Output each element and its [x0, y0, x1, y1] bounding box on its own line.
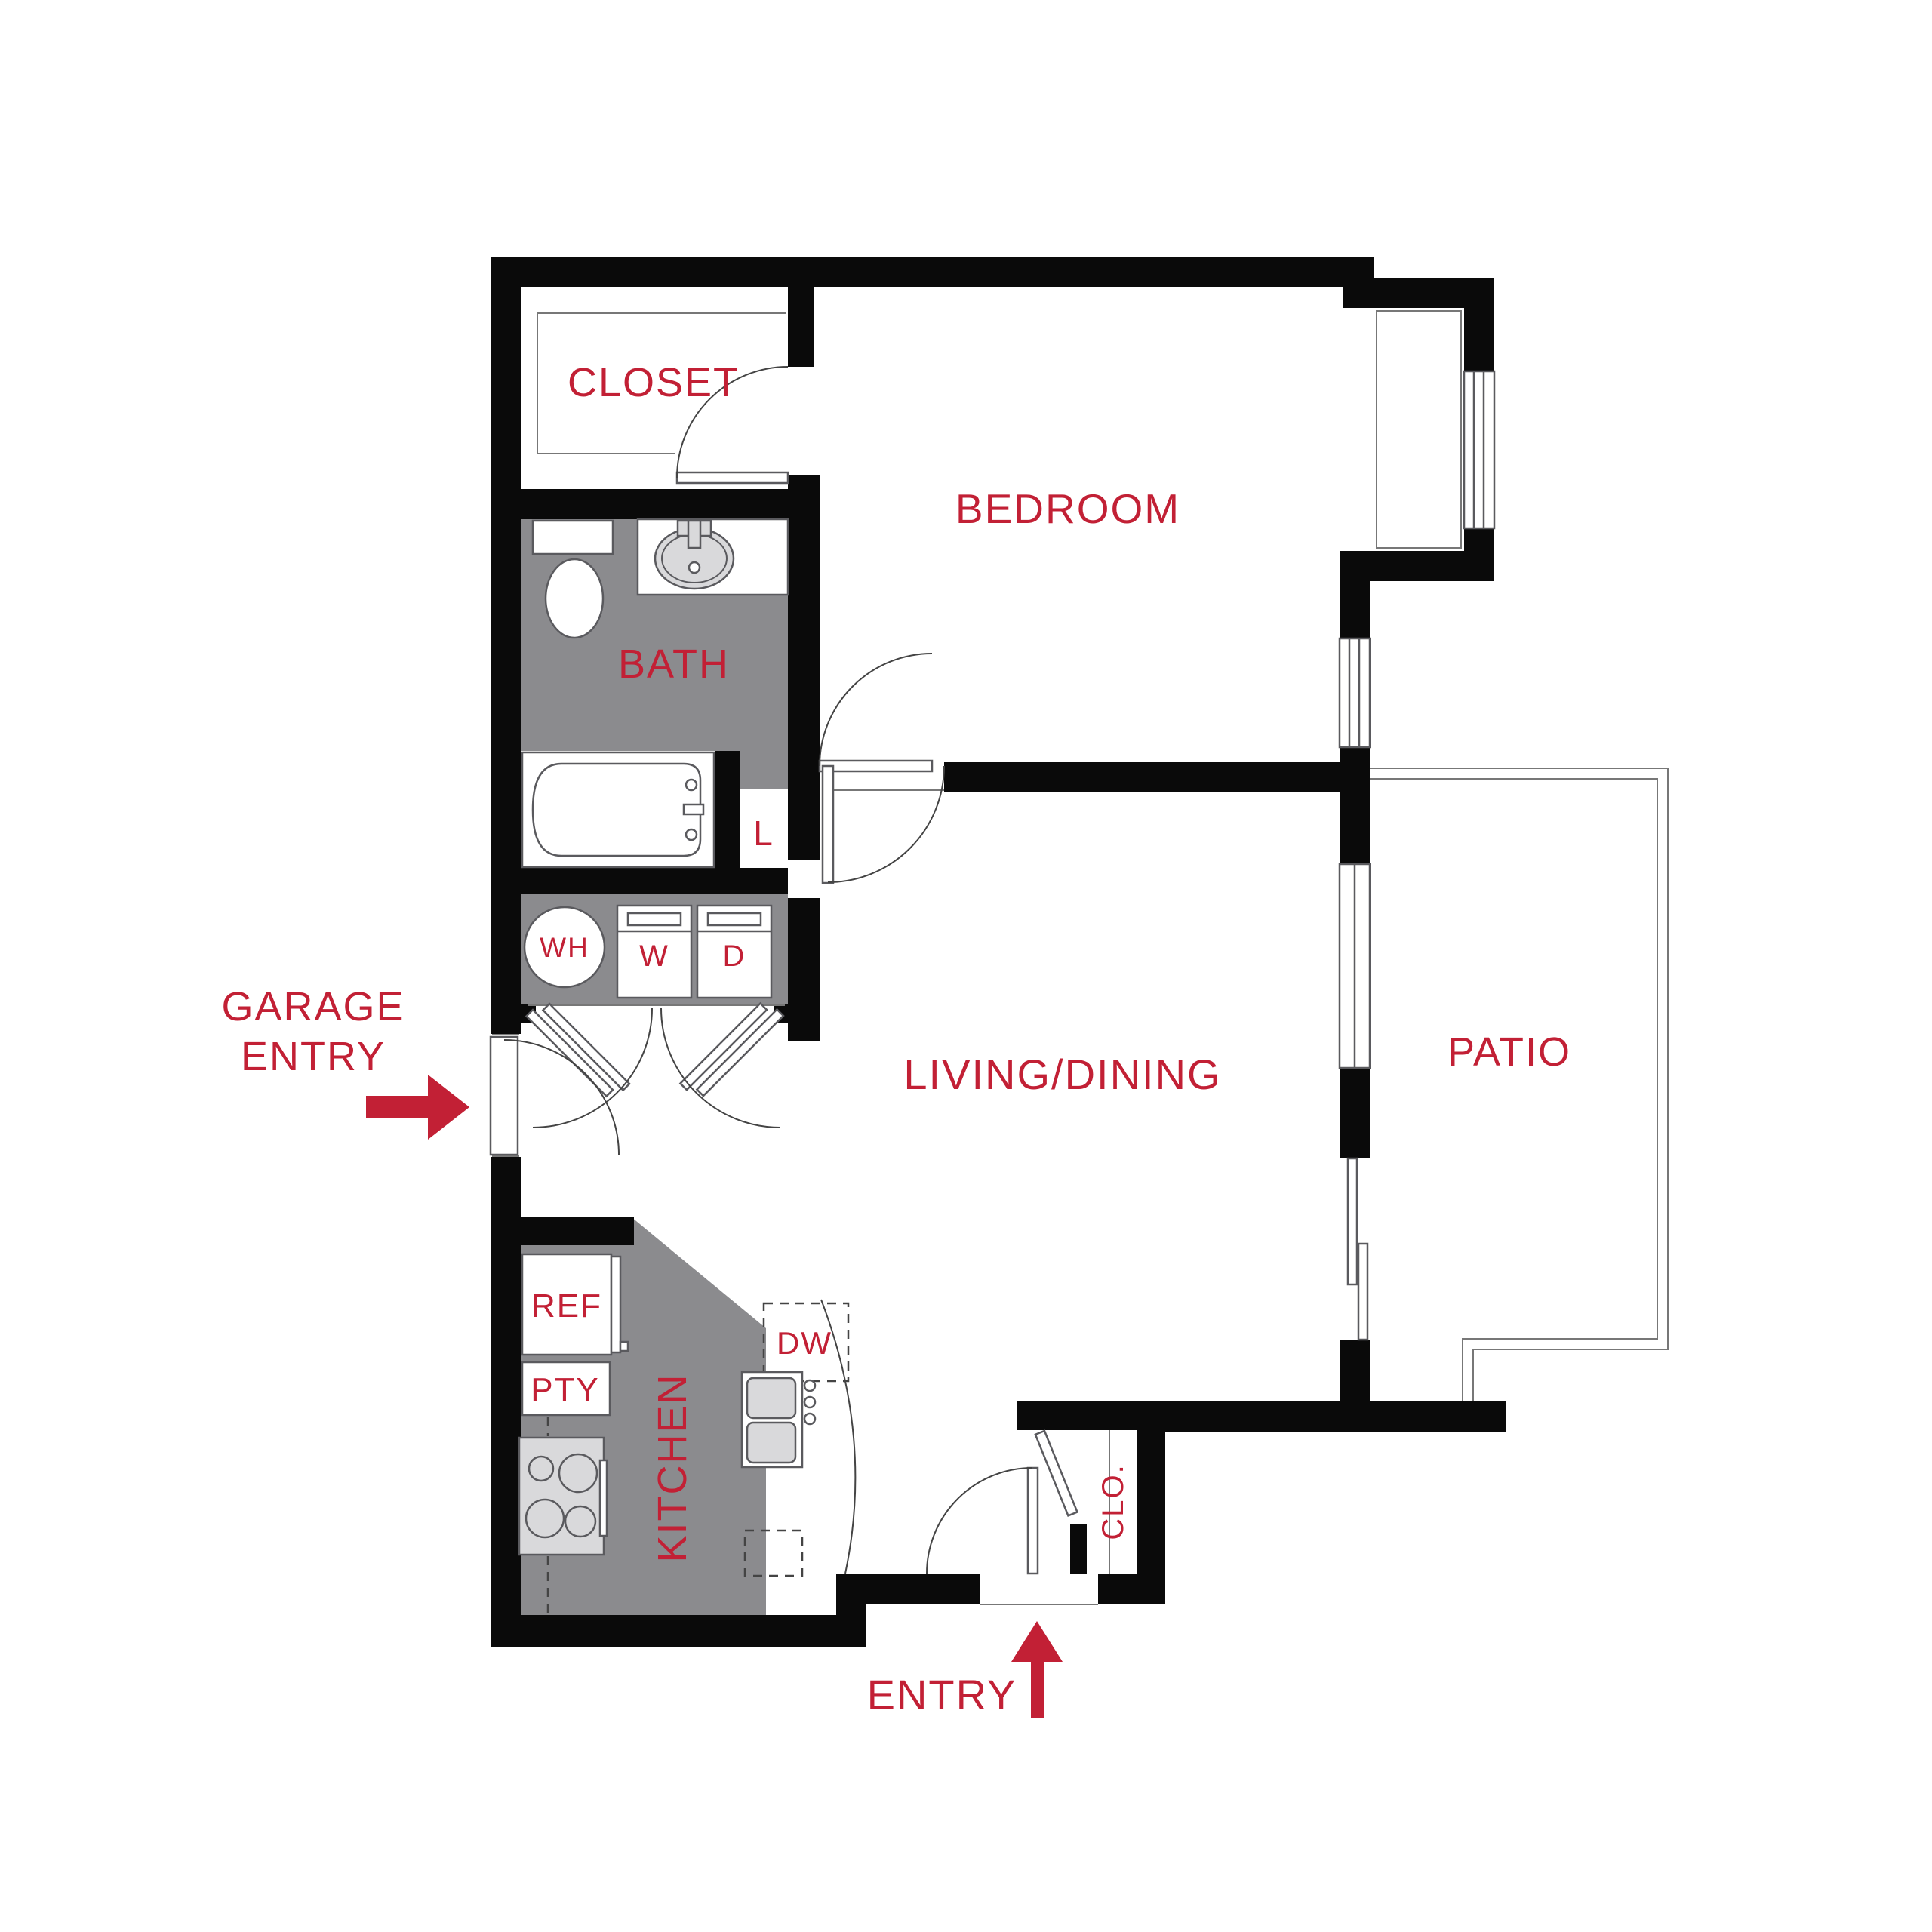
hall-door	[823, 766, 944, 883]
stove	[519, 1438, 607, 1555]
wall-clo-door-stub	[1070, 1524, 1087, 1574]
wall-patio-left-mid	[1340, 1068, 1370, 1158]
floor-plan-canvas: CLOSET BEDROOM BATH L WH W D GARAGE ENTR…	[0, 0, 1932, 1932]
patio-inner-line	[1370, 779, 1657, 1429]
bay-niche-outline	[1377, 311, 1461, 548]
tub-spout	[684, 804, 703, 814]
wall-laundry-top	[491, 868, 788, 894]
kitchen-sink	[742, 1372, 815, 1467]
bedroom-door-swing-arc	[820, 654, 932, 766]
entry-arrow-shaft	[1031, 1660, 1044, 1718]
sink-knob-1	[804, 1380, 815, 1391]
sink-basin-top	[747, 1378, 795, 1418]
hall-door-leaf	[823, 766, 833, 883]
wall-laundry-east	[788, 898, 820, 1041]
sink-basin-bottom	[747, 1423, 795, 1463]
water-heater-label: WH	[540, 932, 589, 963]
stove-outline	[519, 1438, 604, 1555]
wall-patio-left-lower	[1340, 1340, 1370, 1401]
ref-door-line	[611, 1257, 620, 1352]
washer-label: W	[639, 940, 669, 973]
clo-door-leaf	[1035, 1431, 1078, 1515]
garage-entry-label-line2: ENTRY	[241, 1034, 386, 1079]
garage-arrow-shaft	[366, 1096, 428, 1118]
entry-arrow-icon	[1011, 1621, 1063, 1718]
bifold-swing-arc-left	[533, 1008, 652, 1128]
garage-arrow-head	[428, 1075, 469, 1140]
vanity-faucet-spout	[688, 521, 700, 548]
ref-label: REF	[531, 1287, 602, 1324]
slider-panel-outer	[1348, 1158, 1357, 1284]
garage-arrow-icon	[366, 1075, 469, 1140]
wall-clo-top	[1017, 1401, 1165, 1430]
wall-bedroom-right-upper	[1340, 581, 1370, 638]
entry-label: ENTRY	[867, 1671, 1017, 1718]
toilet-tank	[533, 521, 613, 554]
wall-bay-bottom	[1340, 551, 1494, 581]
closet-door-leaf	[677, 472, 788, 483]
bedroom-right-window	[1340, 638, 1370, 747]
pantry-label: PTY	[531, 1371, 600, 1408]
sink-knob-2	[804, 1397, 815, 1407]
vanity-drain	[689, 562, 700, 573]
bay-window	[1464, 371, 1494, 528]
toilet-bowl	[546, 559, 603, 638]
living-window	[1340, 864, 1370, 1068]
patio-sliding-door	[1348, 1158, 1367, 1340]
entry-arrow-head	[1011, 1621, 1063, 1662]
closet-label: CLOSET	[568, 360, 740, 405]
laundry-bifold-doors	[527, 1004, 783, 1128]
wall-closet-bedroom	[788, 287, 814, 367]
kitchen-label: KITCHEN	[650, 1373, 695, 1562]
entry-door-leaf	[1028, 1468, 1038, 1574]
patio-outline	[1370, 768, 1668, 1429]
living-dining-label: LIVING/DINING	[903, 1051, 1221, 1098]
wall-kitchen-bottom	[491, 1615, 866, 1647]
clo-label: CLO.	[1097, 1463, 1130, 1540]
wall-bath-east	[788, 475, 820, 860]
wall-tub-linen-stub	[715, 751, 740, 869]
linen-label: L	[753, 814, 774, 853]
patio-label: PATIO	[1447, 1029, 1571, 1075]
wall-clo-right	[1137, 1401, 1165, 1604]
bedroom-door-leaf	[820, 761, 932, 771]
wall-entry-left	[836, 1574, 980, 1604]
dishwasher-label: DW	[777, 1325, 832, 1361]
dryer-label: D	[723, 940, 746, 973]
floor-plan-page: CLOSET BEDROOM BATH L WH W D GARAGE ENTR…	[0, 0, 1932, 1932]
wall-left-kitchen	[491, 1245, 521, 1615]
garage-door-leaf	[491, 1037, 518, 1155]
bathtub	[522, 752, 714, 867]
bath-label: BATH	[618, 641, 730, 687]
wall-closet-bath	[491, 489, 814, 519]
bedroom-window-frame	[1340, 638, 1370, 747]
wall-left-upper	[491, 287, 521, 1034]
bedroom-door	[820, 654, 932, 771]
wall-bay-right-upper	[1464, 308, 1494, 371]
bay-window-frame	[1464, 371, 1494, 528]
garage-entry-label-line1: GARAGE	[221, 984, 405, 1029]
wall-kitchen-top	[491, 1217, 634, 1245]
wall-living-bottom-right	[1165, 1401, 1506, 1432]
wall-divider-bedroom-living	[944, 762, 1343, 792]
wall-bay-right-lower	[1464, 528, 1494, 551]
patio-outer-line	[1370, 768, 1668, 1429]
entry-door-swing-arc	[927, 1468, 1032, 1574]
wall-bedroom-right-lower	[1340, 747, 1370, 792]
wall-patio-left-upper	[1340, 792, 1370, 864]
hall-door-swing-arc	[828, 766, 944, 882]
stove-handle	[600, 1460, 607, 1536]
ref-handle	[620, 1342, 628, 1351]
slider-panel-inner	[1358, 1244, 1367, 1340]
wall-top	[491, 257, 1374, 287]
sink-knob-3	[804, 1414, 815, 1424]
bedroom-label: BEDROOM	[955, 485, 1180, 532]
wall-bay-top	[1343, 278, 1494, 308]
